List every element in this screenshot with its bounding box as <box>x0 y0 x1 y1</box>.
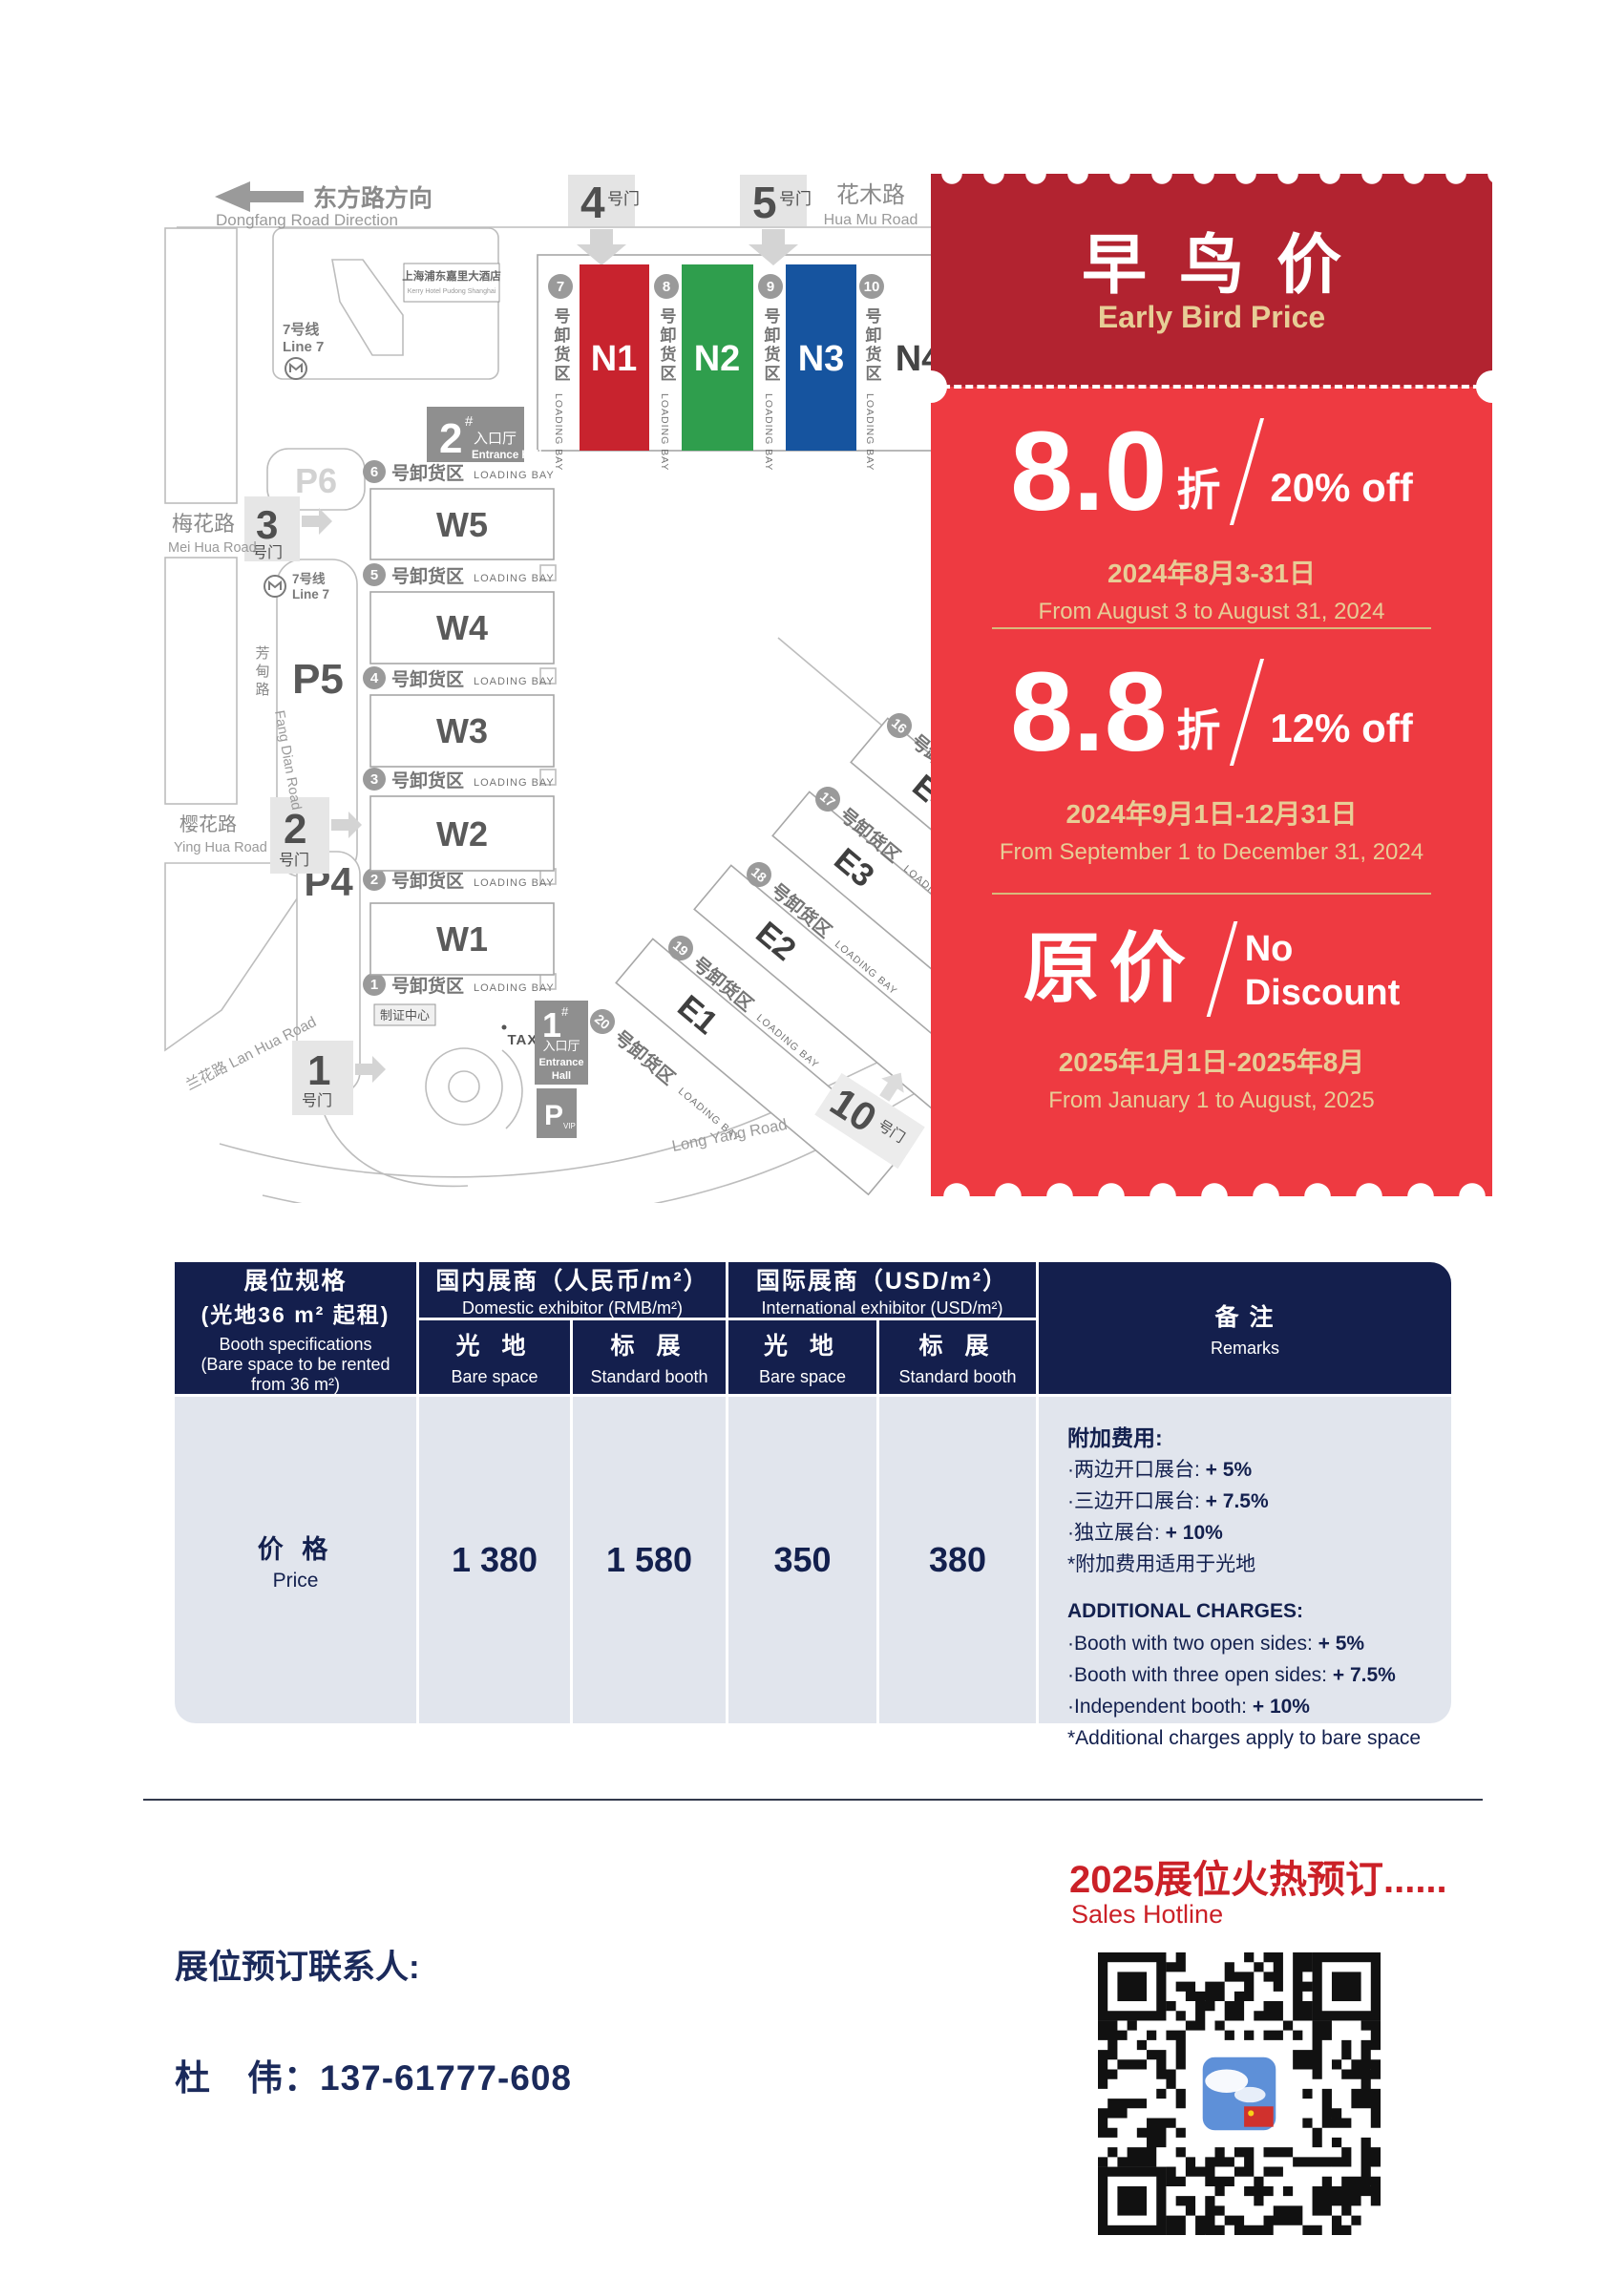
svg-text:Entrance Hall: Entrance Hall <box>472 450 542 461</box>
discount-off: 12% off <box>1270 706 1412 751</box>
svg-text:#: # <box>561 1004 569 1019</box>
ticket-header: 早鸟价 Early Bird Price <box>931 174 1492 387</box>
tier-date-en: From January 1 to August, 2025 <box>1048 1087 1375 1114</box>
svg-text:1: 1 <box>370 977 378 993</box>
discount-value: 8.8 <box>1010 656 1167 769</box>
qr-center-logo-icon <box>1199 2054 1279 2134</box>
remarks-cn-item: *附加费用适用于光地 <box>1067 1549 1451 1580</box>
cert-center: 制证中心 <box>374 1004 435 1025</box>
svg-text:Kerry Hotel Pudong Shanghai: Kerry Hotel Pudong Shanghai <box>408 288 496 295</box>
gate-4: 4 号门 <box>568 175 640 265</box>
svg-text:Hall: Hall <box>552 1070 571 1082</box>
svg-text:号卸货区: 号卸货区 <box>391 565 464 587</box>
svg-text:3: 3 <box>370 771 378 788</box>
flyer-page: 东方路方向 Dongfang Road Direction 4 号门 5 号门 … <box>0 0 1624 2278</box>
meihua-road-en: Mei Hua Road <box>168 540 257 556</box>
svg-text:5: 5 <box>752 178 777 227</box>
slash-icon <box>1230 418 1264 525</box>
price-dom-bare: 1 380 <box>419 1397 570 1723</box>
meihua-road-cn: 梅花路 <box>172 512 235 536</box>
hall-n2: N2 <box>682 264 753 451</box>
svg-text:号卸货区: 号卸货区 <box>391 462 464 484</box>
svg-text:Line 7: Line 7 <box>292 587 329 601</box>
svg-text:号卸货区: 号卸货区 <box>552 307 571 384</box>
huamu-road-cn: 花木路 <box>836 182 905 208</box>
w-bay-3: 3 号卸货区 LOADING BAY <box>363 768 555 791</box>
remarks-cn-item: ·独立展台: + 10% <box>1067 1517 1451 1549</box>
remarks-cn-title: 附加费用: <box>1067 1422 1451 1454</box>
full-price-label: 原价 <box>1023 931 1195 1007</box>
remarks-en-item: ·Booth with three open sides: + 7.5% <box>1067 1659 1451 1691</box>
remarks-en-title: ADDITIONAL CHARGES: <box>1067 1595 1451 1628</box>
hall-w4: W4 <box>370 592 554 664</box>
tier-date-cn: 2025年1月1日-2025年8月 <box>1059 1042 1365 1080</box>
tier-date-cn: 2024年8月3-31日 <box>1107 553 1316 591</box>
svg-text:号门: 号门 <box>779 190 812 208</box>
sub-header-intl-bare: 光 地 Bare space <box>728 1320 876 1394</box>
discount-unit: 折 <box>1176 696 1220 759</box>
svg-text:4: 4 <box>370 670 379 686</box>
parking-p6: P6 <box>295 461 337 500</box>
sub-header-intl-standard: 标 展 Standard booth <box>879 1320 1036 1394</box>
contact-phone: 杜 伟：137-61777-608 <box>175 2049 572 2100</box>
svg-text:N1: N1 <box>591 339 638 379</box>
tier-date-en: From September 1 to December 31, 2024 <box>1000 839 1424 866</box>
dongfang-road-en: Dongfang Road Direction <box>216 211 398 229</box>
remarks-cell: 附加费用: ·两边开口展台: + 5% ·三边开口展台: + 7.5% ·独立展… <box>1039 1397 1451 1723</box>
yinghua-road-cn: 樱花路 <box>179 813 237 835</box>
svg-text:号门: 号门 <box>252 544 283 561</box>
contact-person-label: 展位预订联系人: <box>175 1940 420 1989</box>
svg-text:W4: W4 <box>436 608 488 647</box>
svg-text:LOADING BAY: LOADING BAY <box>553 393 564 471</box>
svg-text:2: 2 <box>439 415 462 462</box>
remarks-en-item: ·Booth with two open sides: + 5% <box>1067 1628 1451 1659</box>
vip-parking: P VIP <box>537 1088 577 1138</box>
hall-n1: N1 <box>580 264 649 451</box>
svg-text:P: P <box>544 1100 563 1131</box>
svg-text:LOADING BAY: LOADING BAY <box>474 676 555 687</box>
hall-w1: W1 <box>370 903 554 975</box>
remarks-cn-item: ·三边开口展台: + 7.5% <box>1067 1486 1451 1517</box>
svg-text:7: 7 <box>557 279 564 295</box>
kerry-hotel: 上海浦东嘉里大酒店 Kerry Hotel Pudong Shanghai <box>402 264 501 302</box>
right-arrow-icon <box>302 508 332 535</box>
svg-text:号卸货区: 号卸货区 <box>391 870 464 892</box>
tier-second: 8.8 折 12% off 2024年9月1日-12月31日 From Sept… <box>931 656 1492 895</box>
svg-text:W5: W5 <box>436 505 488 544</box>
dongfang-road-cn: 东方路方向 <box>313 184 432 212</box>
svg-text:号卸货区: 号卸货区 <box>762 307 781 384</box>
yinghua-road-en: Ying Hua Road <box>174 840 267 855</box>
site-map: 东方路方向 Dongfang Road Direction 4 号门 5 号门 … <box>162 172 945 1203</box>
svg-text:N3: N3 <box>798 339 845 379</box>
svg-text:LOADING BAY: LOADING BAY <box>474 777 555 789</box>
svg-text:#: # <box>465 413 474 430</box>
svg-text:Entrance: Entrance <box>538 1057 583 1068</box>
slash-icon <box>1230 659 1264 766</box>
hall-w3: W3 <box>370 695 554 767</box>
svg-text:4: 4 <box>580 178 605 227</box>
tier-date-cn: 2024年9月1日-12月31日 <box>1065 793 1357 832</box>
huamu-road-en: Hua Mu Road <box>824 212 918 228</box>
hall-w5: W5 <box>370 489 554 559</box>
hall-w2: W2 <box>370 796 554 871</box>
svg-text:号卸货区: 号卸货区 <box>658 307 677 384</box>
svg-text:LOADING BAY: LOADING BAY <box>763 393 774 471</box>
svg-text:号卸货区: 号卸货区 <box>610 1025 680 1088</box>
svg-text:LOADING BAY: LOADING BAY <box>474 877 555 889</box>
metro-icon <box>285 358 306 379</box>
price-intl-bare: 350 <box>728 1397 876 1723</box>
svg-text:上海浦东嘉里大酒店: 上海浦东嘉里大酒店 <box>402 269 501 283</box>
w-bay-5: 5 号卸货区 LOADING BAY <box>363 563 555 587</box>
svg-text:入口厅: 入口厅 <box>474 431 517 447</box>
early-bird-ticket: 早鸟价 Early Bird Price 8.0 折 20% off 2024年… <box>931 174 1492 1196</box>
svg-text:7号线: 7号线 <box>283 321 319 338</box>
price-intl-standard: 380 <box>879 1397 1036 1723</box>
no-discount-line2: Discount <box>1245 973 1401 1013</box>
footer-divider <box>143 1799 1483 1801</box>
svg-text:3: 3 <box>256 502 278 547</box>
hall-n3: N3 <box>786 264 856 451</box>
parking-p5: P5 <box>292 656 344 703</box>
ticket-title-cn: 早鸟价 <box>931 212 1492 306</box>
row-label-price: 价 格 Price <box>175 1397 416 1723</box>
tier-full-price: 原价 No Discount 2025年1月1日-2025年8月 From Ja… <box>931 921 1492 1150</box>
tier-early-bird: 8.0 折 20% off 2024年8月3-31日 From August 3… <box>931 415 1492 629</box>
svg-text:号卸货区: 号卸货区 <box>391 668 464 690</box>
perforation-line <box>931 385 1492 389</box>
wechat-qr-code <box>1098 1952 1381 2235</box>
svg-text:7号线: 7号线 <box>292 571 326 586</box>
sub-header-dom-standard: 标 展 Standard booth <box>573 1320 726 1394</box>
svg-text:LOADING BAY: LOADING BAY <box>474 982 555 994</box>
longyang-road: Long Yang Road <box>670 1116 789 1155</box>
svg-text:8: 8 <box>663 279 670 295</box>
col-header-remarks: 备 注 Remarks <box>1039 1262 1451 1394</box>
svg-text:9: 9 <box>767 279 774 295</box>
discount-value: 8.0 <box>1010 415 1167 528</box>
w-bay-4: 4 号卸货区 LOADING BAY <box>363 666 555 690</box>
svg-text:号门: 号门 <box>607 190 640 208</box>
svg-text:LOADING BAY: LOADING BAY <box>659 393 670 471</box>
svg-text:号卸货区: 号卸货区 <box>391 770 464 791</box>
svg-text:LOADING BAY: LOADING BAY <box>474 573 555 584</box>
svg-text:N2: N2 <box>694 339 741 379</box>
scallop-edge-top <box>931 174 1492 186</box>
svg-text:号门: 号门 <box>279 852 309 869</box>
tier-date-en: From August 3 to August 31, 2024 <box>1039 599 1385 625</box>
svg-text:W2: W2 <box>436 814 488 854</box>
remarks-en-item: ·Independent booth: + 10% <box>1067 1691 1451 1722</box>
fangdian-road-cn: 芳甸路 <box>254 645 270 700</box>
svg-text:号卸货区: 号卸货区 <box>391 975 464 997</box>
svg-text:2: 2 <box>370 872 378 888</box>
metro-icon <box>264 576 285 597</box>
ticket-notch-right <box>1476 370 1508 403</box>
gate-1: 1 号门 <box>292 1041 386 1115</box>
discount-off: 20% off <box>1270 465 1412 511</box>
booking-headline: 2025展位火热预订...... <box>1069 1848 1447 1904</box>
entrance-hall-1: 1 # 入口厅 Entrance Hall <box>535 1001 588 1085</box>
gate-5: 5 号门 <box>740 175 812 265</box>
remarks-cn-item: ·两边开口展台: + 5% <box>1067 1454 1451 1486</box>
slash-icon <box>1206 921 1237 1017</box>
svg-text:5: 5 <box>370 567 378 583</box>
svg-text:2: 2 <box>284 806 306 853</box>
west-arrow-icon <box>215 181 304 212</box>
svg-text:号门: 号门 <box>302 1092 332 1109</box>
svg-text:6: 6 <box>370 464 378 480</box>
price-dom-standard: 1 580 <box>573 1397 726 1723</box>
svg-text:VIP: VIP <box>563 1122 576 1130</box>
discount-unit: 折 <box>1176 455 1220 518</box>
svg-text:LOADING BAY: LOADING BAY <box>474 470 555 481</box>
ticket-notch-left <box>915 370 947 403</box>
group-header-domestic: 国内展商（人民币/m²） Domestic exhibitor (RMB/m²) <box>419 1262 726 1318</box>
svg-text:Line 7: Line 7 <box>283 339 324 355</box>
group-header-international: 国际展商（USD/m²） International exhibitor (US… <box>728 1262 1036 1318</box>
svg-text:W3: W3 <box>436 711 488 750</box>
sales-hotline-label: Sales Hotline <box>1071 1900 1223 1930</box>
svg-text:制证中心: 制证中心 <box>380 1008 430 1023</box>
w-bay-6: 6 号卸货区 LOADING BAY <box>363 460 555 484</box>
svg-text:1: 1 <box>307 1047 330 1094</box>
svg-text:10: 10 <box>864 279 880 295</box>
svg-text:W1: W1 <box>436 919 488 959</box>
gold-divider <box>992 893 1431 895</box>
ticket-title-en: Early Bird Price <box>931 300 1492 335</box>
entrance-hall-2: 2 # 入口厅 Entrance Hall <box>427 407 542 462</box>
w-bay-1: 1 号卸货区 LOADING BAY <box>363 973 555 997</box>
gold-divider <box>992 627 1431 629</box>
scallop-edge-bottom <box>931 1181 1492 1196</box>
sub-header-dom-bare: 光 地 Bare space <box>419 1320 570 1394</box>
no-discount-line1: No <box>1245 929 1294 969</box>
remarks-en-item: *Additional charges apply to bare space <box>1067 1722 1451 1754</box>
svg-text:LOADING BAY: LOADING BAY <box>864 393 875 471</box>
svg-text:入口厅: 入口厅 <box>542 1039 580 1053</box>
col-header-spec: 展位规格 (光地36 m² 起租) Booth specifications (… <box>175 1262 416 1394</box>
svg-text:号卸货区: 号卸货区 <box>863 307 882 384</box>
